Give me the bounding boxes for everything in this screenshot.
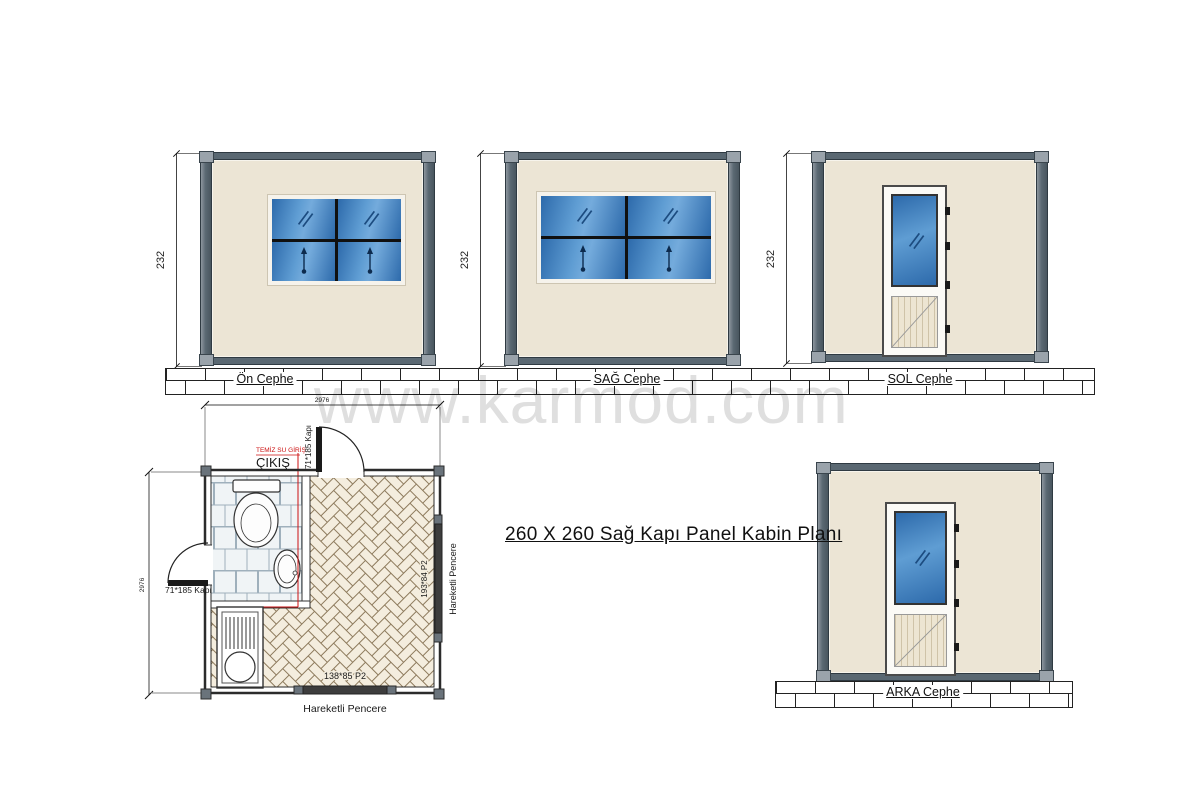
extension-line bbox=[481, 366, 506, 367]
door-lower-panel bbox=[894, 614, 947, 667]
dimension-value: 232 bbox=[765, 249, 777, 267]
corner-post bbox=[423, 155, 435, 362]
elevation-label-front: Ön Cephe bbox=[234, 372, 297, 386]
elevation-label-left: SOL Cephe bbox=[885, 372, 956, 386]
top-rail bbox=[825, 463, 1045, 471]
dimension-value: 232 bbox=[155, 251, 167, 269]
extension-line bbox=[787, 363, 812, 364]
hinge bbox=[954, 560, 959, 568]
corner-cap bbox=[199, 151, 214, 163]
hinge bbox=[945, 207, 950, 215]
corner-cap bbox=[421, 151, 436, 163]
floor-plan: 2976 2976 bbox=[60, 395, 490, 735]
extension-line bbox=[177, 366, 202, 367]
bottom-rail bbox=[208, 357, 427, 365]
door-lower-panel bbox=[891, 296, 938, 348]
corner-cap bbox=[1034, 351, 1049, 363]
corner-post bbox=[1041, 466, 1053, 678]
glass-reflection-icon bbox=[902, 228, 928, 254]
opening-arrow-icon bbox=[363, 245, 377, 277]
window-right-type: Hareketli Pencere bbox=[448, 543, 458, 615]
corner-post bbox=[505, 155, 517, 362]
window-right bbox=[537, 192, 715, 283]
bottom-rail bbox=[513, 357, 732, 365]
dimension-line bbox=[480, 153, 481, 367]
top-rail bbox=[513, 152, 732, 160]
corner-cap bbox=[811, 351, 826, 363]
corner-cap bbox=[726, 151, 741, 163]
window-pane bbox=[272, 242, 335, 282]
window-pane bbox=[338, 199, 401, 239]
corner-post bbox=[1036, 155, 1048, 359]
corner-cap bbox=[726, 354, 741, 366]
corner-cap bbox=[504, 151, 519, 163]
glass-reflection-icon bbox=[656, 203, 682, 229]
window-pane bbox=[338, 242, 401, 282]
extension-line bbox=[787, 153, 812, 154]
entrance-door bbox=[885, 502, 956, 676]
sink bbox=[274, 550, 300, 588]
plan-height-value: 2976 bbox=[139, 577, 146, 592]
corner-post bbox=[728, 155, 740, 362]
door-swing-top bbox=[316, 427, 364, 472]
window-front bbox=[268, 195, 405, 285]
glass-reflection-icon bbox=[570, 203, 596, 229]
cabin-front-elevation bbox=[200, 152, 435, 365]
cabin-back-elevation bbox=[817, 463, 1053, 681]
door-opening-top bbox=[318, 467, 364, 478]
corner-post bbox=[817, 466, 829, 678]
corner-cap bbox=[504, 354, 519, 366]
clean-water-label: TEMİZ SU GİRİŞ bbox=[256, 445, 307, 454]
dimension-line bbox=[176, 153, 177, 367]
plan-window-bottom bbox=[303, 686, 387, 694]
door-glass bbox=[891, 194, 938, 287]
entrance-door bbox=[882, 185, 947, 357]
corner-cap bbox=[199, 354, 214, 366]
glass-reflection-icon bbox=[357, 206, 383, 232]
elevation-label-right: SAĞ Cephe bbox=[591, 372, 664, 386]
window-pane bbox=[628, 239, 712, 279]
height-dimension-right: 232 bbox=[480, 153, 481, 367]
cabin-right-elevation bbox=[505, 152, 740, 365]
plan-window-right bbox=[435, 524, 442, 633]
window-pane bbox=[541, 239, 625, 279]
elevation-label-back: ARKA Cephe bbox=[883, 685, 963, 699]
door-left-label: 71*185 Kapı bbox=[165, 585, 212, 595]
window-pane bbox=[541, 196, 625, 236]
round-sink bbox=[225, 652, 255, 682]
window-bottom-size: 138*85 P2 bbox=[324, 671, 366, 681]
corner-post bbox=[812, 155, 824, 359]
door-opening-left bbox=[202, 545, 213, 585]
opening-arrow-icon bbox=[297, 245, 311, 277]
drawing-sheet: www.karmod.com 232 bbox=[0, 0, 1200, 800]
opening-arrow-icon bbox=[576, 243, 590, 275]
plan-title: 260 X 260 Sağ Kapı Panel Kabin Planı bbox=[505, 524, 842, 546]
window-pane bbox=[628, 196, 712, 236]
window-right-size: 193*84 P2 bbox=[420, 560, 429, 598]
corner-cap bbox=[1034, 151, 1049, 163]
window-bottom-type: Hareketli Pencere bbox=[303, 703, 387, 715]
hinge bbox=[954, 643, 959, 651]
glass-reflection-icon bbox=[908, 545, 934, 571]
top-rail bbox=[820, 152, 1040, 160]
hinge bbox=[945, 325, 950, 333]
corner-post bbox=[200, 155, 212, 362]
extension-line bbox=[481, 153, 506, 154]
dimension-value: 232 bbox=[459, 251, 471, 269]
window-pane bbox=[272, 199, 335, 239]
top-rail bbox=[208, 152, 427, 160]
corner-cap bbox=[811, 151, 826, 163]
hinge bbox=[954, 599, 959, 607]
corner-cap bbox=[1039, 462, 1054, 474]
plan-width-value: 2976 bbox=[315, 397, 330, 404]
door-glass bbox=[894, 511, 947, 605]
glass-reflection-icon bbox=[291, 206, 317, 232]
corner-cap bbox=[421, 354, 436, 366]
height-dimension-front: 232 bbox=[176, 153, 177, 367]
plan-width-dimension bbox=[201, 401, 444, 467]
hinge bbox=[954, 524, 959, 532]
height-dimension-left: 232 bbox=[786, 153, 787, 364]
exit-label: ÇIKIŞ bbox=[256, 455, 290, 470]
kitchen-unit bbox=[217, 607, 263, 688]
opening-arrow-icon bbox=[662, 243, 676, 275]
hinge bbox=[945, 242, 950, 250]
corner-cap bbox=[816, 462, 831, 474]
hinge bbox=[945, 281, 950, 289]
dimension-line bbox=[786, 153, 787, 364]
door-top-label: 71*185 Kapı bbox=[304, 425, 313, 469]
toilet bbox=[233, 480, 280, 547]
cabin-left-elevation bbox=[812, 152, 1048, 362]
